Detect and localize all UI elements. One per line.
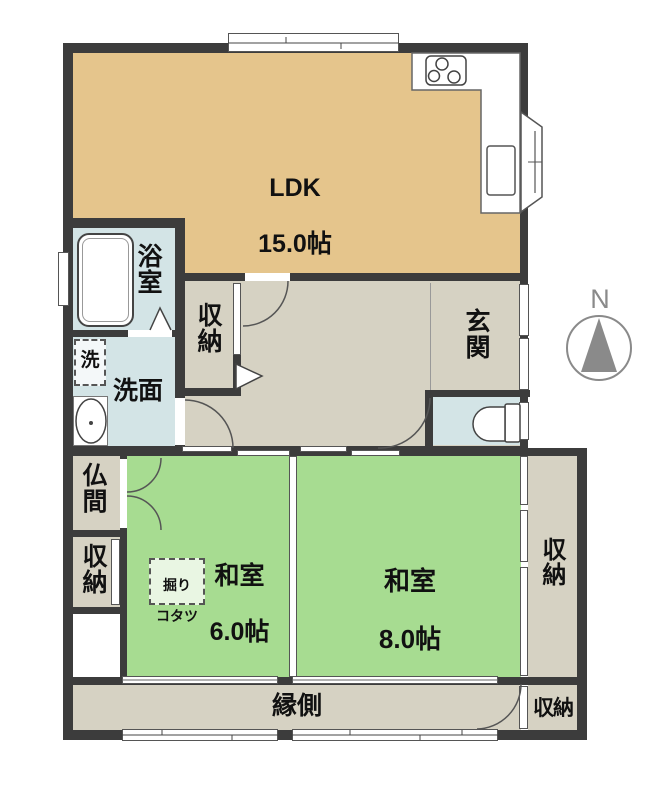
label-washroom: 洗面 <box>106 377 170 405</box>
label-washitsu-8: 和室 8.0帖 <box>345 538 475 654</box>
folding-door-bath <box>150 308 171 330</box>
label-ldk: LDK 15.0帖 <box>230 146 360 258</box>
door-arc-ldk <box>243 281 288 326</box>
plan-annotations <box>0 0 669 800</box>
folding-door-storage <box>236 364 262 389</box>
washitsu6-name: 和室 <box>214 562 264 590</box>
door-arc-toilet <box>378 398 430 448</box>
door-arc-butsuma-2 <box>127 496 161 530</box>
ldk-size: 15.0帖 <box>258 230 332 258</box>
washitsu8-size: 8.0帖 <box>379 624 441 654</box>
washitsu6-size: 6.0帖 <box>210 618 270 646</box>
kitchen-sink-icon <box>487 146 515 195</box>
floor-plan: LDK 15.0帖 浴室 洗 洗面 収納 玄関 仏間 収納 和室 6.0帖 掘り… <box>0 0 669 800</box>
washitsu8-name: 和室 <box>384 566 436 596</box>
label-right-storage: 収納 <box>537 537 564 587</box>
compass-label: N <box>585 284 615 314</box>
door-arc-butsuma-1 <box>127 458 161 492</box>
label-entrance: 玄関 <box>462 308 490 360</box>
label-butsuma: 仏間 <box>79 462 107 514</box>
kotatsu-line1: 掘り <box>163 577 191 593</box>
ldk-name: LDK <box>269 174 320 202</box>
label-bottom-storage: 収納 <box>528 697 578 721</box>
compass-needle <box>581 318 617 372</box>
label-bath: 浴室 <box>134 243 162 295</box>
label-laundry: 洗 <box>76 350 104 371</box>
door-arc-washroom <box>185 400 233 448</box>
label-engawa: 縁側 <box>237 692 357 720</box>
toilet-icon <box>505 404 520 442</box>
kotatsu-line2: コタツ <box>156 608 198 624</box>
label-hall-storage: 収納 <box>194 302 222 354</box>
door-arc-engawa <box>477 684 521 729</box>
label-kotatsu: 掘り コタツ <box>149 562 205 625</box>
label-left-storage: 収納 <box>79 543 107 595</box>
